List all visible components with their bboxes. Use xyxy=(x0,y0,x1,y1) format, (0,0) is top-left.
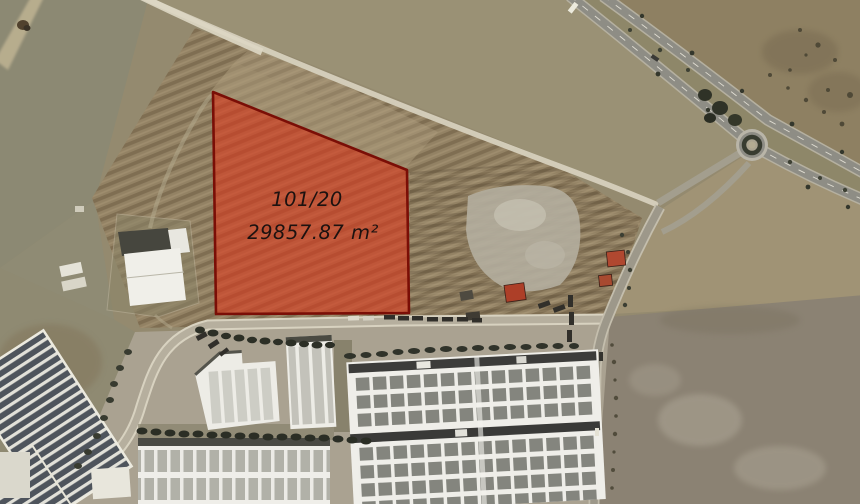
warehouse xyxy=(138,438,330,504)
parcel-number-label: 101/20 xyxy=(271,188,343,211)
satellite-map: 101/20 29857.87 m² xyxy=(0,0,860,504)
building xyxy=(286,335,337,429)
parcel-area-label: 29857.87 m² xyxy=(247,221,379,244)
satellite-map-view: 101/20 29857.87 m² xyxy=(0,0,860,504)
factory-roof xyxy=(346,349,606,504)
roundabout xyxy=(736,129,768,161)
